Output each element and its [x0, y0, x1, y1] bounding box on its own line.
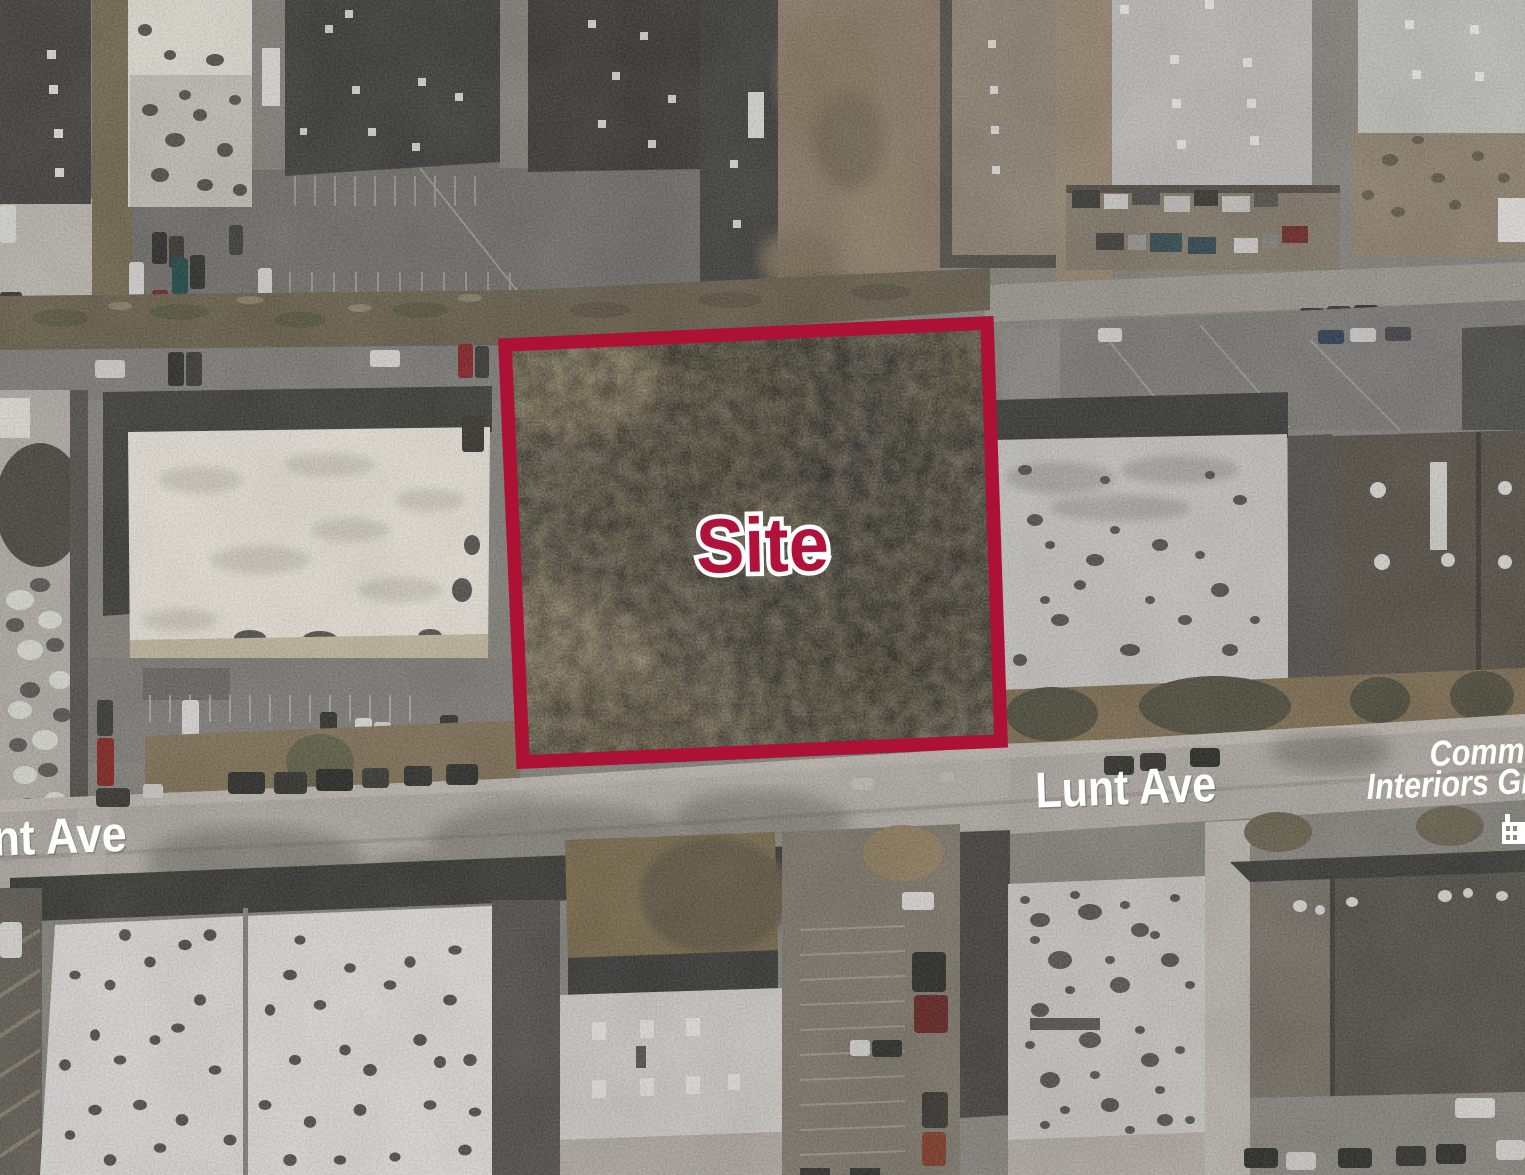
- svg-text:Lunt Ave: Lunt Ave: [1034, 756, 1217, 818]
- svg-text:Interiors Gr: Interiors Gr: [1366, 762, 1525, 808]
- svg-text:nt Ave: nt Ave: [0, 807, 127, 868]
- svg-text:Site: Site: [695, 500, 830, 589]
